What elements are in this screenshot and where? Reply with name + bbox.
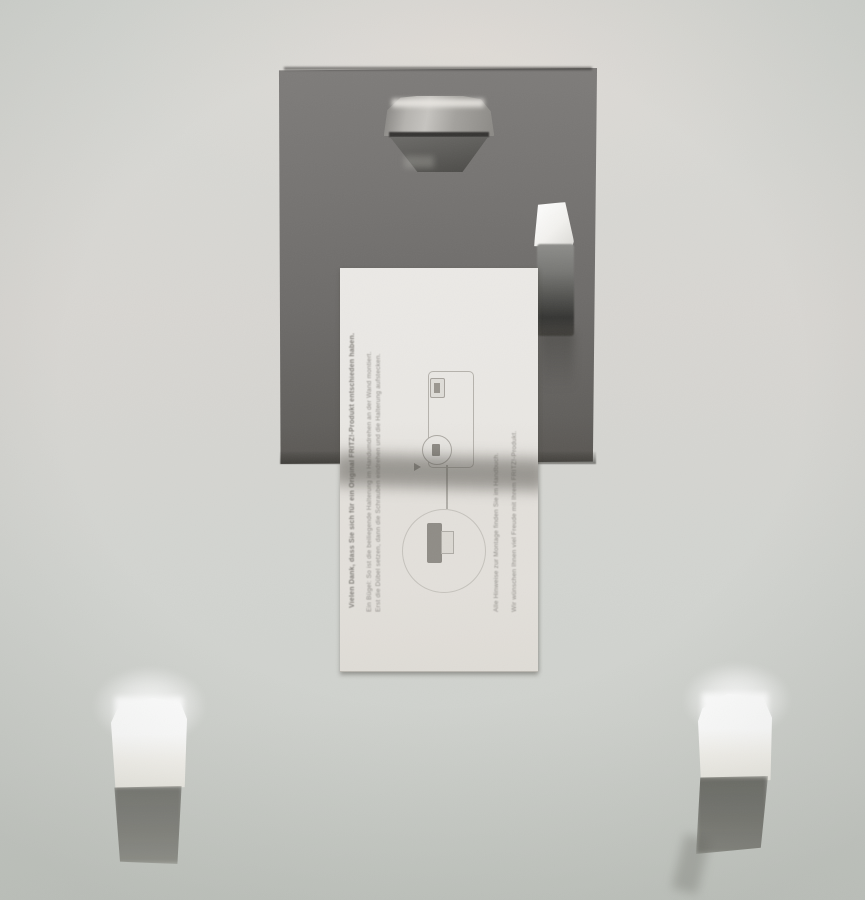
hanger-hook-slot xyxy=(389,132,489,137)
instruction-card: Vielen Dank, dass Sie sich für ein Origi… xyxy=(340,268,538,672)
photo-back-of-wall-mount: Vielen Dank, dass Sie sich für ein Origi… xyxy=(0,0,865,900)
metal-clip-shadow xyxy=(540,332,574,390)
diagram-adapter-plug xyxy=(441,531,454,554)
panel-top-edge xyxy=(284,67,592,70)
diagram-adapter-body xyxy=(427,523,442,563)
illegible-text-line: Wir wünschen Ihnen viel Freude mit Ihrem… xyxy=(511,394,519,612)
hanger-tongue-shine xyxy=(404,156,434,168)
foam-block-right-highlight xyxy=(702,693,768,725)
foam-block-left-shadow xyxy=(113,786,183,864)
panel-cast-shadow-on-card xyxy=(340,453,538,491)
metal-clip-bar xyxy=(537,244,574,336)
hanger-hook-shine xyxy=(392,99,484,107)
foam-block-left-highlight xyxy=(115,697,183,731)
diagram-connector-pin xyxy=(434,383,440,393)
diagram-port-icon xyxy=(432,444,440,456)
